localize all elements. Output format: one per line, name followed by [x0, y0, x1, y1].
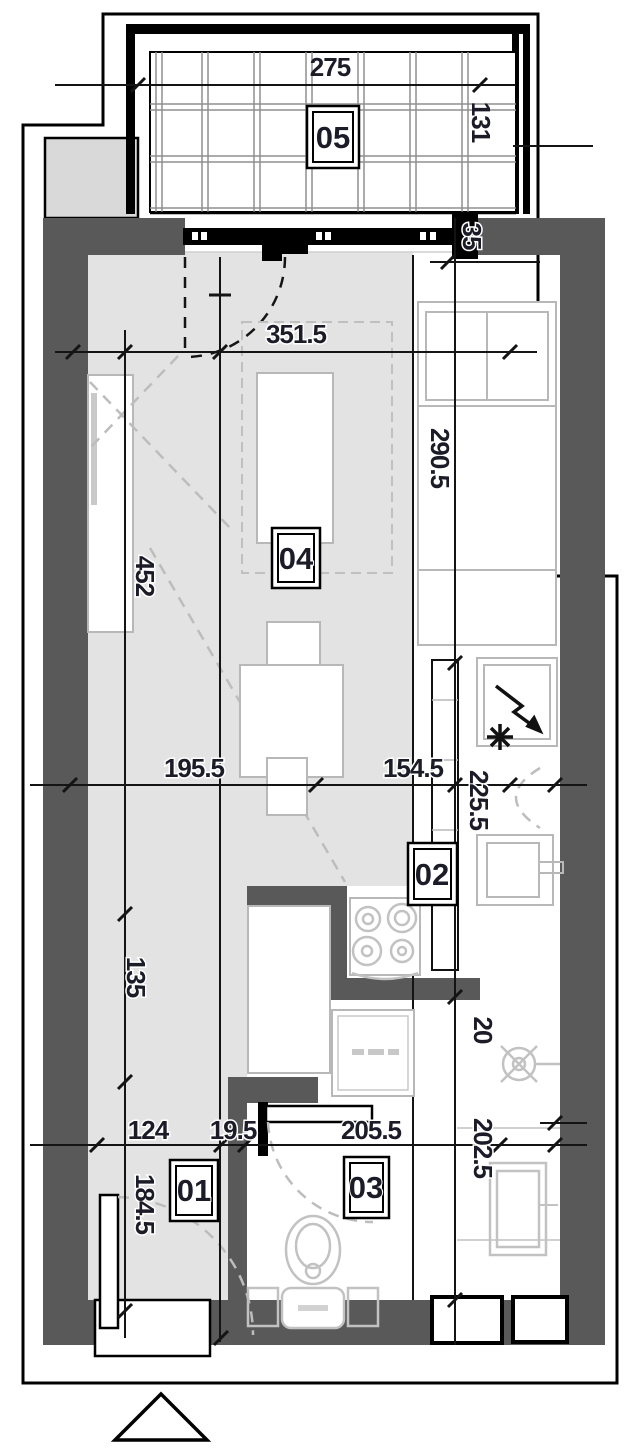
corridor-floor-upper: [88, 886, 247, 1077]
toilet-drain: [306, 1264, 320, 1278]
dim-chain-154: 154.5: [383, 753, 444, 783]
dim-shaft-depth: 202.5: [468, 1118, 498, 1179]
window-notch: [192, 232, 198, 240]
door-track-step: [262, 245, 308, 254]
room-number: 05: [316, 120, 350, 155]
window-notch: [325, 232, 331, 240]
toilet-bowl-inner: [296, 1224, 330, 1268]
room-number: 01: [177, 1173, 211, 1208]
dim-chain-195: 195.5: [164, 753, 225, 783]
wall-left: [43, 255, 88, 1345]
room-label-01: 01: [170, 1160, 218, 1221]
dim-chain-135: 135: [121, 957, 151, 998]
toilet-bowl: [286, 1216, 340, 1284]
room-label-03: 03: [344, 1157, 389, 1218]
room-label-04: 04: [272, 528, 320, 588]
room-label-05: 05: [307, 106, 359, 168]
wall-top-left: [43, 218, 185, 255]
balcony-rail-left: [126, 24, 135, 214]
dim-bed-nook-depth: 290.5: [425, 428, 455, 489]
wall-top-right: [478, 218, 605, 255]
shaft-box-1: [432, 1297, 502, 1343]
entrance-door-leaf: [100, 1195, 118, 1328]
balcony-rail-right-inner: [523, 24, 530, 214]
dim-bathroom-width: 205.5: [341, 1115, 402, 1145]
dim-living-width: 351.5: [266, 319, 327, 349]
illegible-label: [298, 1305, 328, 1311]
entrance-triangle-icon: [115, 1394, 207, 1440]
window-notch: [430, 232, 436, 240]
room-number: 04: [279, 541, 314, 576]
balcony-rail-top: [126, 24, 528, 34]
dim-shaft-20: 20: [468, 1017, 498, 1044]
floor-plan-drawing: 05 04 02 03 01 275 131 35 351.5 290.5 45…: [0, 0, 640, 1448]
neighbor-wall-block: [45, 138, 138, 218]
dim-balcony-depth: 131: [466, 102, 496, 143]
window-notch: [316, 232, 322, 240]
room-number: 02: [415, 857, 449, 892]
dim-window-offset: 35: [457, 223, 487, 250]
illegible-label: [352, 1049, 399, 1055]
fridge-door-swing: [516, 768, 540, 828]
window-notch: [201, 232, 207, 240]
dim-kitchen-depth: 225.5: [464, 770, 494, 831]
dim-living-depth: 452: [130, 556, 160, 597]
door-track-step2: [262, 254, 282, 261]
wardrobe-rail: [91, 393, 97, 505]
dim-corridor-depth: 184.5: [130, 1174, 160, 1235]
chair-bottom: [267, 758, 307, 815]
table: [257, 373, 333, 543]
dim-wall-19: 19.5: [210, 1115, 257, 1145]
kitchen-sink-basin: [487, 843, 539, 897]
shower-tray-inner: [497, 1171, 539, 1247]
wall-right: [560, 255, 605, 1345]
floor-plan-page: 05 04 02 03 01 275 131 35 351.5 290.5 45…: [0, 0, 640, 1448]
kitchen-lower-counter: [248, 906, 330, 1073]
fan-icon: [501, 1046, 560, 1082]
wall-bathroom-jut: [228, 1077, 318, 1103]
room-label-02: 02: [408, 843, 457, 905]
window-notch: [420, 232, 426, 240]
dim-corridor-width: 124: [128, 1115, 170, 1145]
room-number: 03: [349, 1170, 383, 1205]
wall-bathroom-top: [330, 978, 480, 1000]
shaft-box-2: [513, 1297, 567, 1342]
dim-balcony-width: 275: [310, 52, 351, 82]
